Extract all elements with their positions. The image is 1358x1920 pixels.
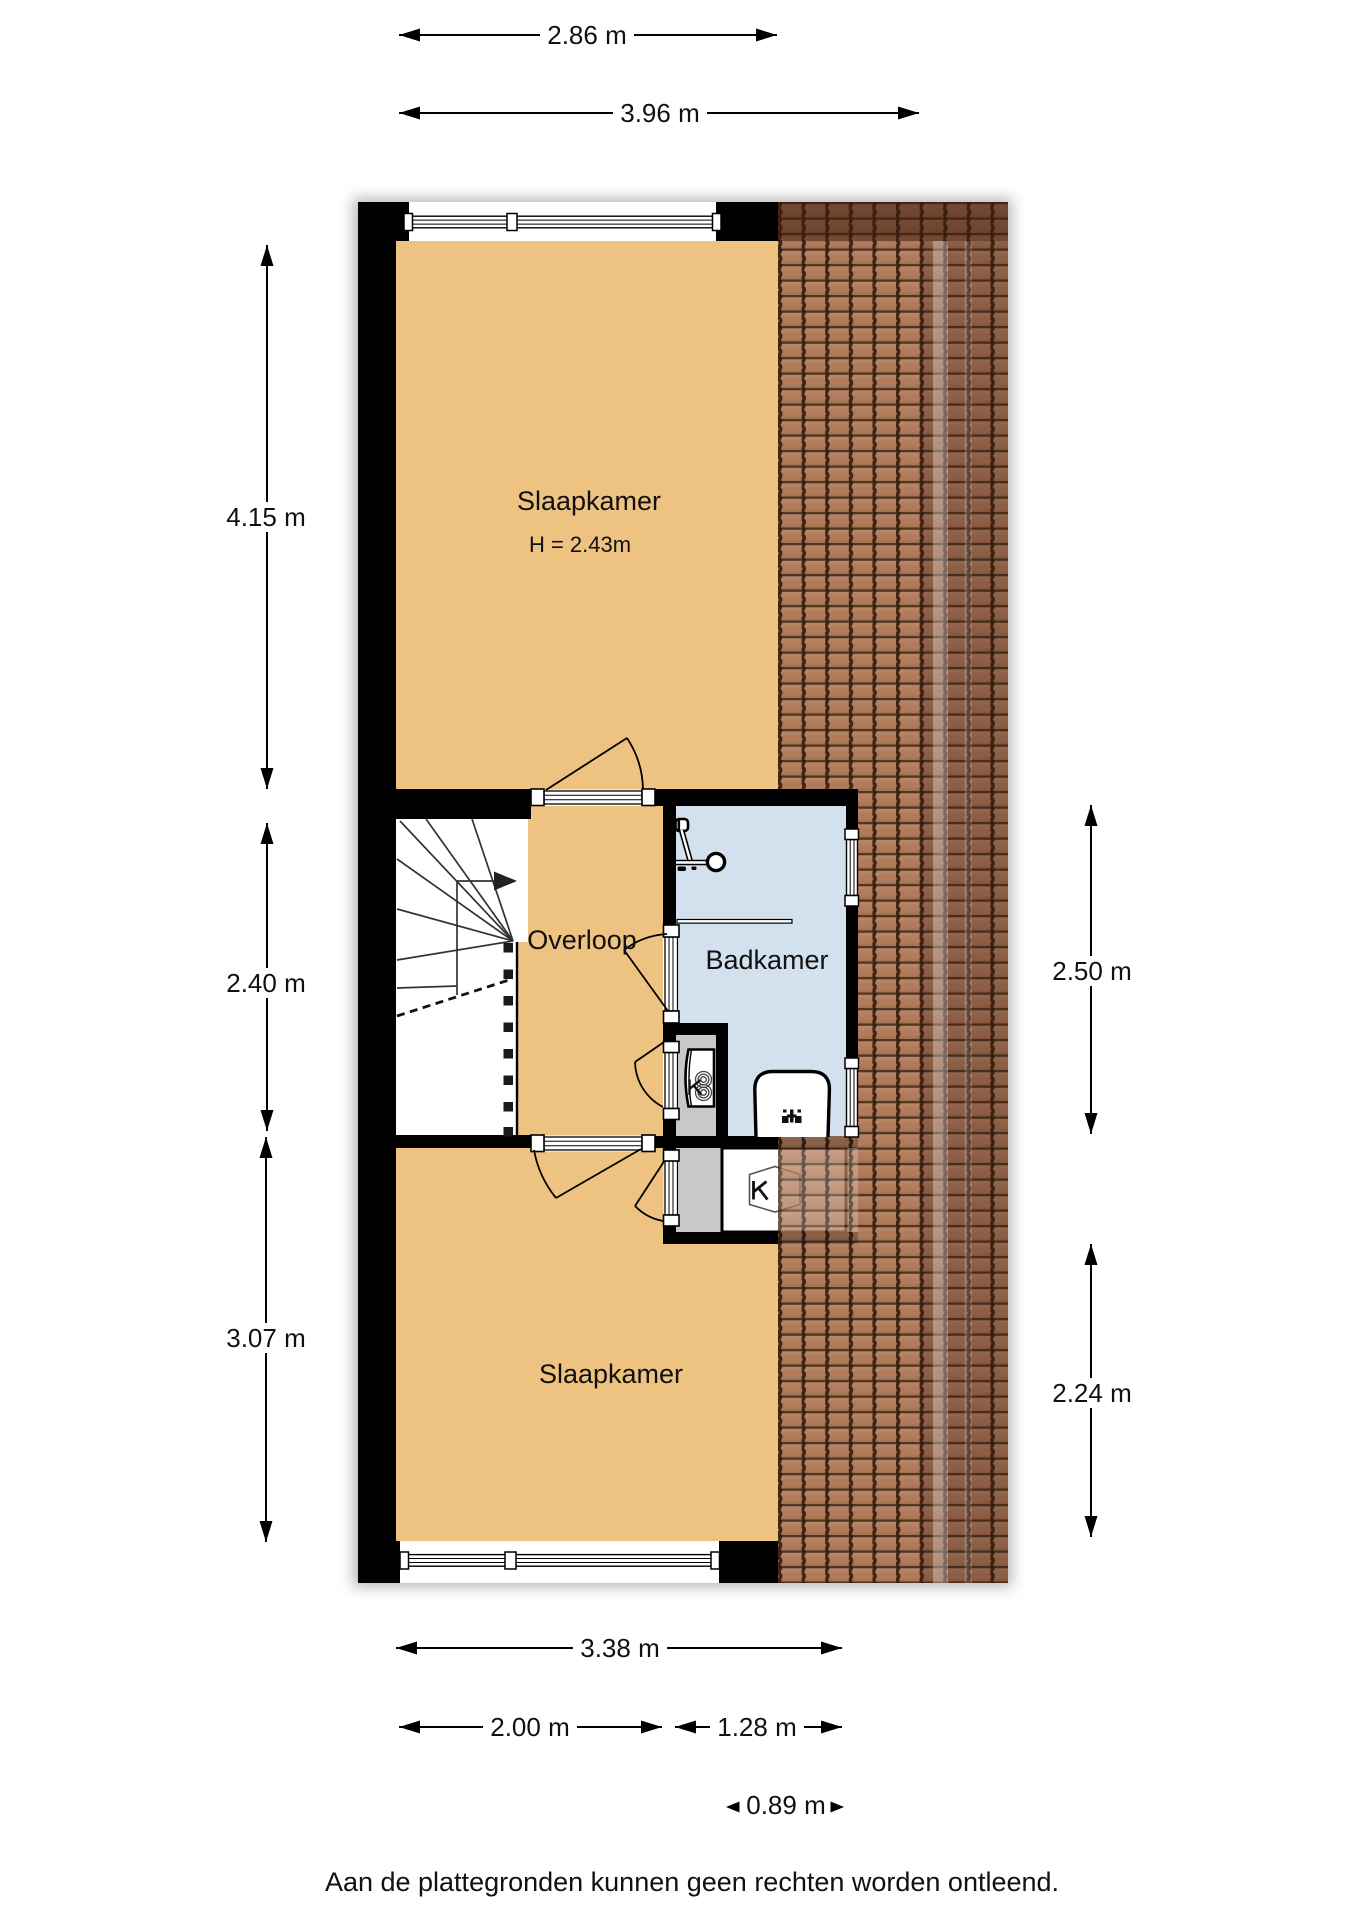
svg-text:2.86 m: 2.86 m [547,20,627,50]
svg-text:Slaapkamer: Slaapkamer [539,1359,683,1389]
svg-text:4.15 m: 4.15 m [226,502,306,532]
svg-text:H = 2.43m: H = 2.43m [529,532,631,557]
svg-text:3.38 m: 3.38 m [580,1633,660,1663]
svg-text:Overloop: Overloop [527,925,637,955]
svg-text:Badkamer: Badkamer [705,945,828,975]
svg-text:Slaapkamer: Slaapkamer [517,486,661,516]
svg-text:Aan de plattegronden kunnen ge: Aan de plattegronden kunnen geen rechten… [325,1867,1059,1897]
svg-text:2.50 m: 2.50 m [1052,956,1132,986]
svg-text:0.89 m: 0.89 m [746,1790,826,1820]
svg-text:2.24 m: 2.24 m [1052,1378,1132,1408]
svg-text:3.96 m: 3.96 m [620,98,700,128]
svg-text:1.28 m: 1.28 m [717,1712,797,1742]
svg-text:2.40 m: 2.40 m [226,968,306,998]
svg-text:3.07 m: 3.07 m [226,1323,306,1353]
svg-text:2.00 m: 2.00 m [490,1712,570,1742]
